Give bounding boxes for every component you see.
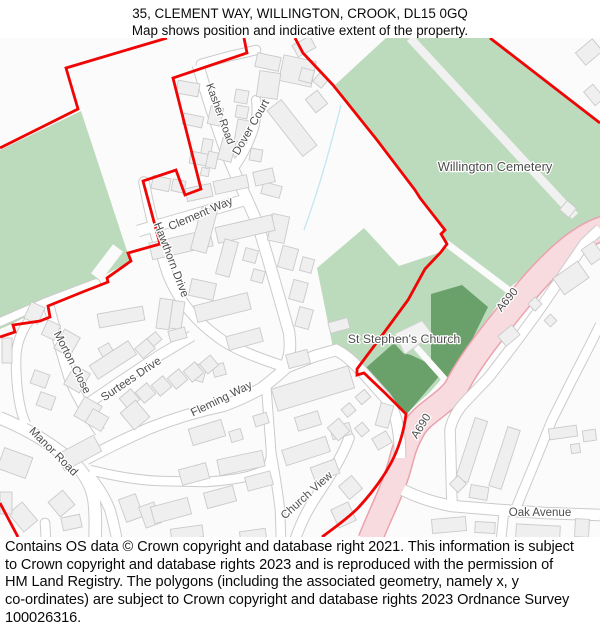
svg-text:Oak Avenue: Oak Avenue [509,507,571,519]
svg-text:St Stephen's Church: St Stephen's Church [348,332,461,346]
svg-text:Willington Cemetery: Willington Cemetery [438,159,553,174]
